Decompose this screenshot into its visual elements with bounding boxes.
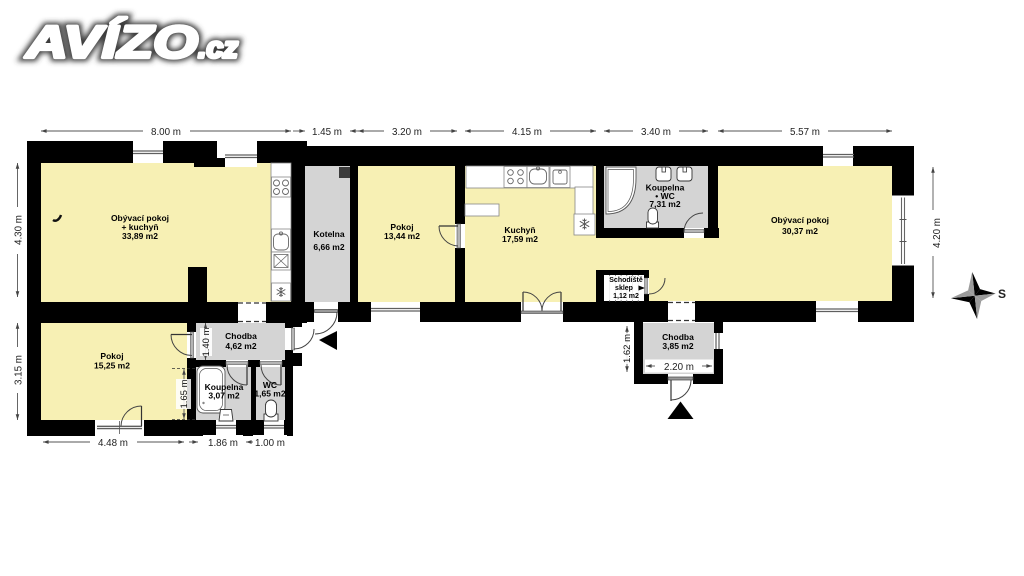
svg-text:Kotelna: Kotelna — [313, 229, 344, 239]
svg-text:30,37 m2: 30,37 m2 — [782, 226, 818, 236]
svg-text:4.15 m: 4.15 m — [512, 127, 542, 138]
svg-text:1.00 m: 1.00 m — [255, 438, 285, 449]
svg-text:1.40 m: 1.40 m — [201, 327, 212, 356]
svg-text:3.20 m: 3.20 m — [392, 127, 422, 138]
svg-text:8.00 m: 8.00 m — [151, 127, 181, 138]
svg-text:sklep: sklep — [615, 285, 633, 292]
svg-text:Chodba: Chodba — [225, 331, 257, 341]
svg-text:2.20 m: 2.20 m — [664, 362, 694, 373]
svg-text:3.40 m: 3.40 m — [641, 127, 671, 138]
svg-text:5.57 m: 5.57 m — [790, 127, 820, 138]
svg-text:17,59 m2: 17,59 m2 — [502, 234, 538, 244]
svg-text:7,31 m2: 7,31 m2 — [649, 199, 680, 209]
svg-text:4.48 m: 4.48 m — [98, 438, 128, 449]
svg-text:Pokoj: Pokoj — [100, 351, 123, 361]
svg-text:33,89 m2: 33,89 m2 — [122, 231, 158, 241]
svg-text:13,44 m2: 13,44 m2 — [384, 231, 420, 241]
svg-text:3,07 m2: 3,07 m2 — [208, 391, 239, 401]
svg-text:3.15 m: 3.15 m — [14, 355, 25, 385]
svg-text:4.30 m: 4.30 m — [14, 215, 25, 245]
svg-text:S: S — [998, 287, 1006, 301]
svg-text:1,65 m2: 1,65 m2 — [254, 389, 285, 399]
svg-text:4.20 m: 4.20 m — [932, 218, 943, 248]
svg-text:3,85 m2: 3,85 m2 — [662, 341, 693, 351]
svg-text:4,62 m2: 4,62 m2 — [225, 341, 256, 351]
svg-text:Obývací pokoj: Obývací pokoj — [771, 215, 829, 225]
svg-text:Schodiště: Schodiště — [609, 277, 643, 284]
svg-text:1.62 m: 1.62 m — [622, 334, 633, 363]
svg-text:6,66 m2: 6,66 m2 — [313, 242, 344, 252]
svg-text:1.45 m: 1.45 m — [312, 127, 342, 138]
svg-text:1.65 m: 1.65 m — [179, 379, 190, 408]
svg-text:15,25 m2: 15,25 m2 — [94, 361, 130, 371]
svg-text:1.86 m: 1.86 m — [208, 438, 238, 449]
svg-text:1,12 m2: 1,12 m2 — [613, 293, 639, 300]
